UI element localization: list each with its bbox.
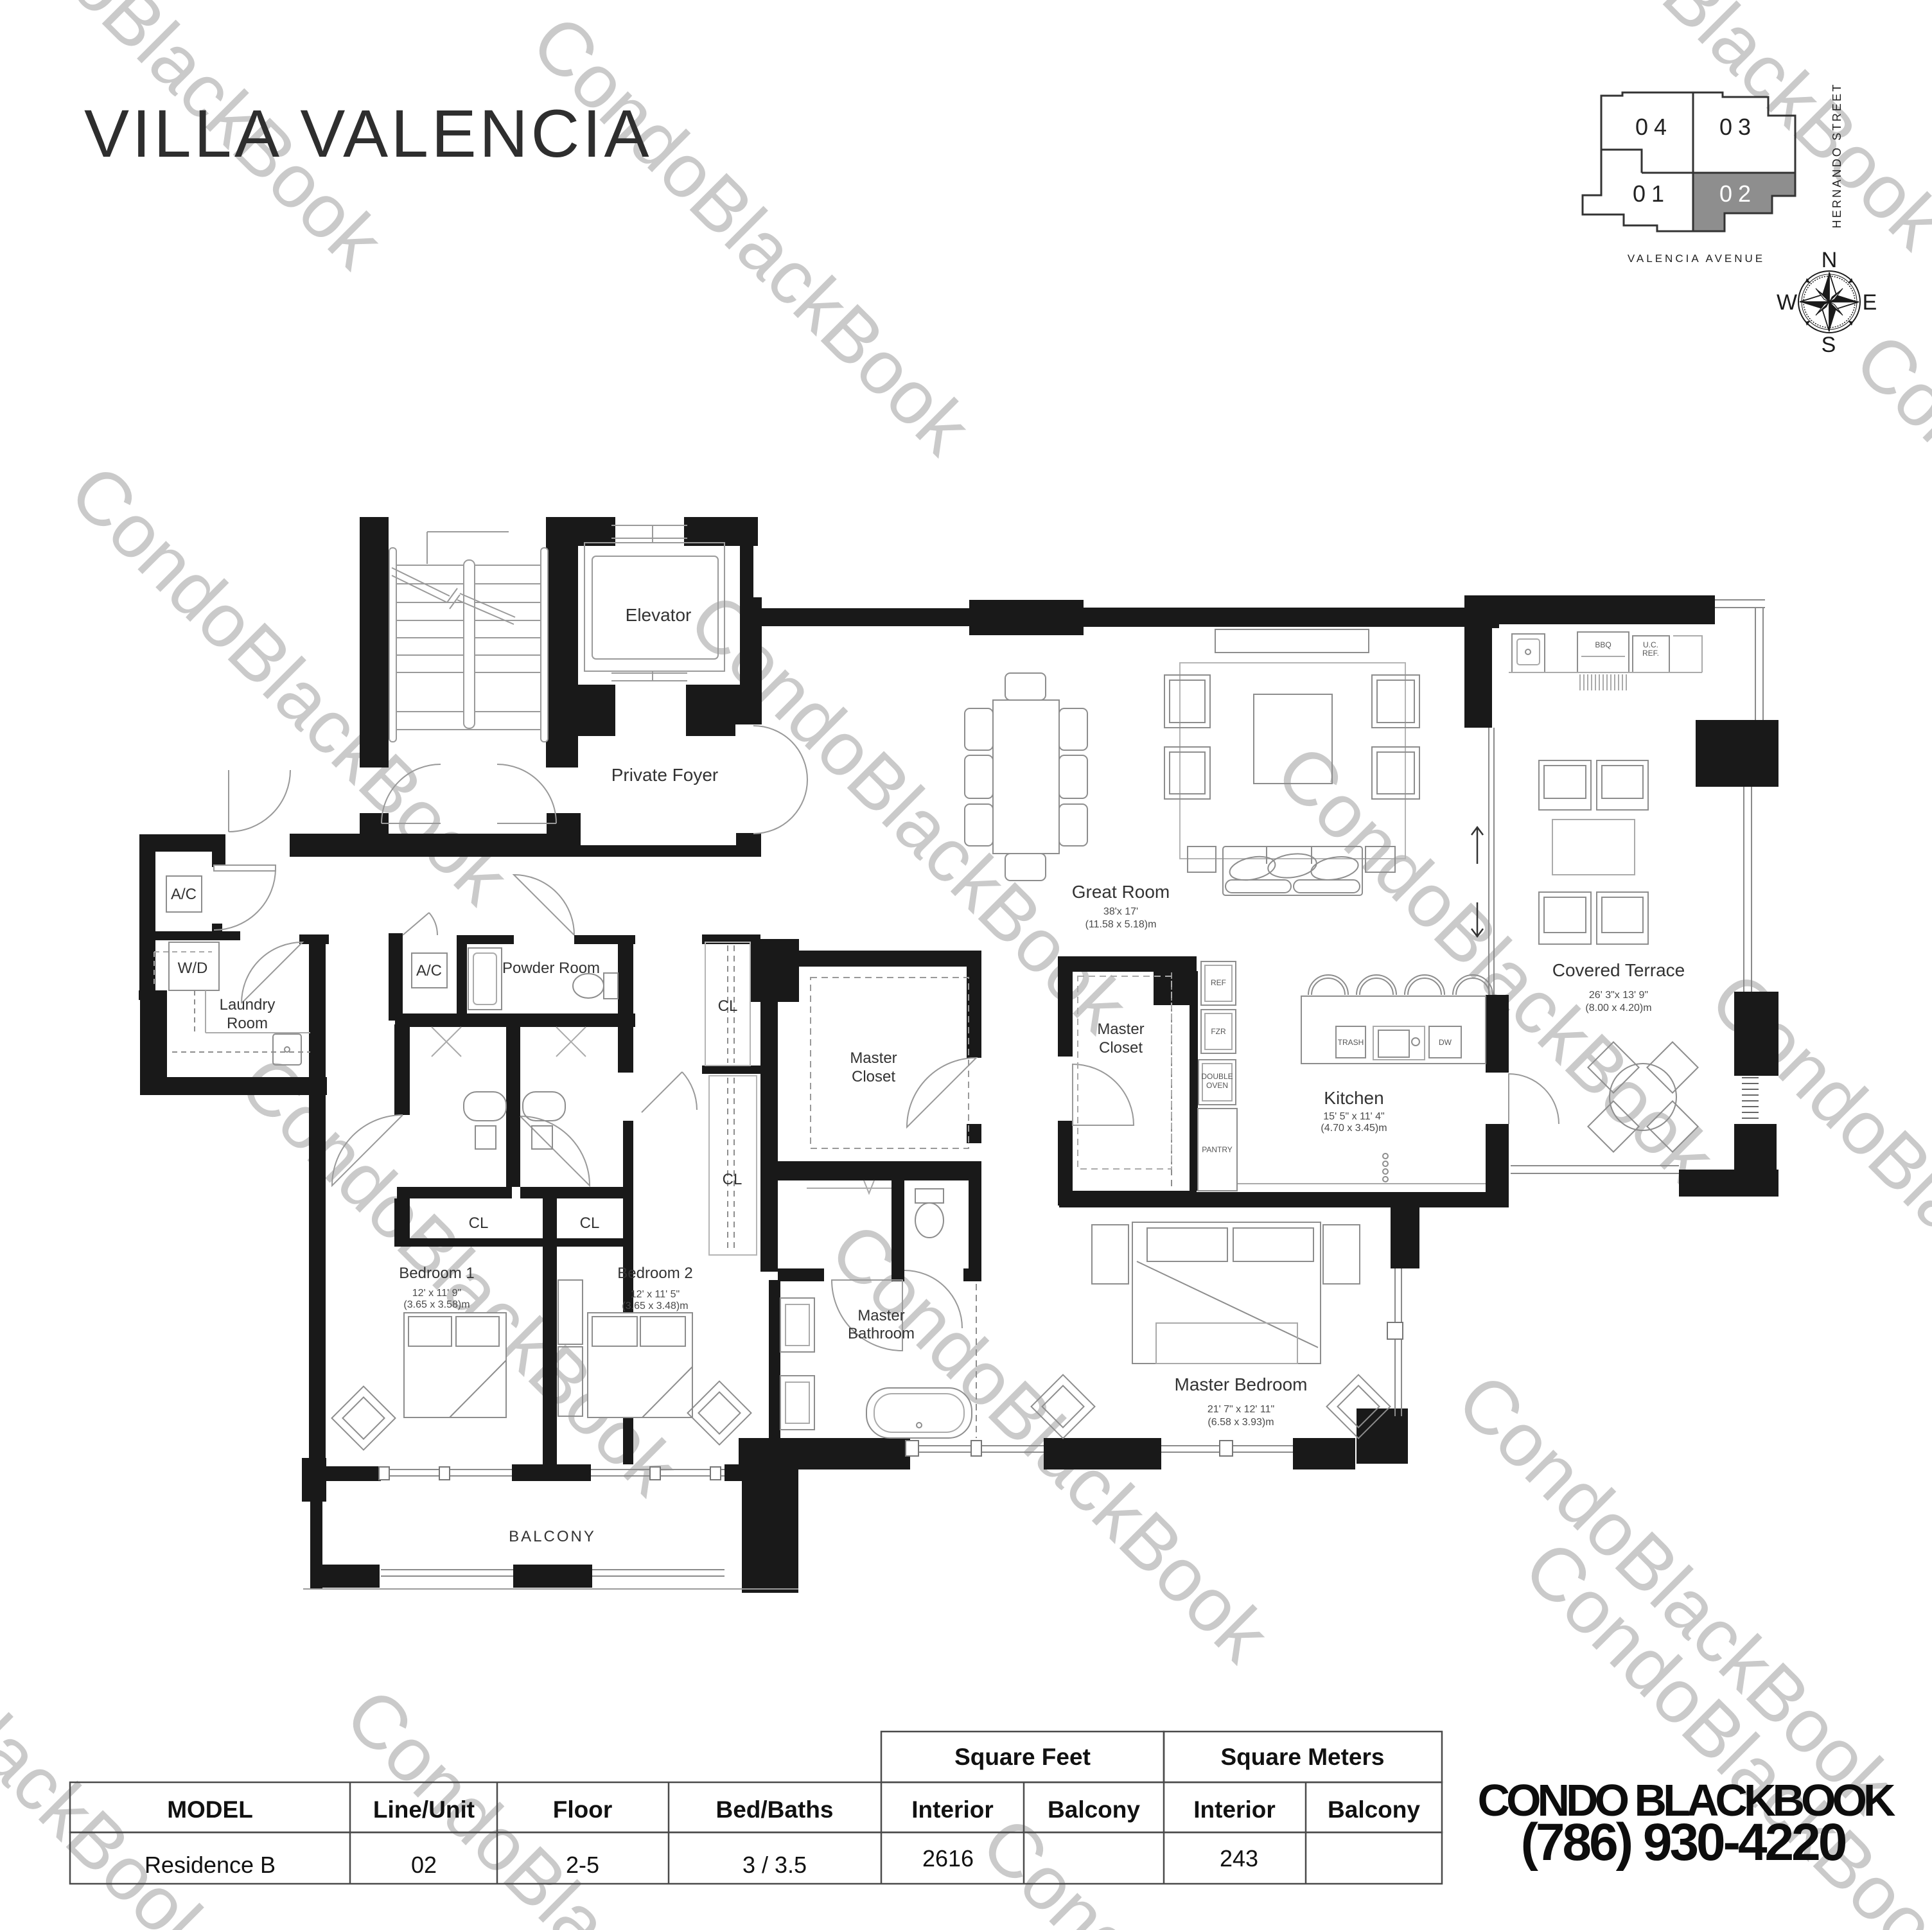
- svg-text:U.C.: U.C.: [1643, 640, 1658, 649]
- svg-text:21' 7" x 12' 11": 21' 7" x 12' 11": [1207, 1404, 1274, 1415]
- svg-text:Interior: Interior: [911, 1796, 993, 1823]
- svg-text:W/D: W/D: [178, 960, 208, 977]
- svg-text:CL: CL: [718, 997, 738, 1015]
- svg-text:A/C: A/C: [416, 962, 442, 979]
- svg-text:MODEL: MODEL: [167, 1796, 253, 1823]
- svg-text:Bed/Baths: Bed/Baths: [716, 1796, 834, 1823]
- svg-text:N: N: [1822, 248, 1838, 272]
- svg-text:02: 02: [411, 1852, 437, 1878]
- svg-text:26' 3"x 13' 9": 26' 3"x 13' 9": [1589, 990, 1648, 1001]
- svg-text:W: W: [1777, 290, 1797, 315]
- svg-text:S: S: [1822, 333, 1836, 357]
- svg-text:Private Foyer: Private Foyer: [611, 765, 719, 785]
- svg-text:HERNANDO STREET: HERNANDO STREET: [1831, 82, 1843, 228]
- svg-text:(3.65 x 3.58)m: (3.65 x 3.58)m: [403, 1299, 470, 1310]
- svg-text:01: 01: [1633, 180, 1670, 207]
- svg-text:CL: CL: [580, 1215, 600, 1232]
- svg-text:Master: Master: [857, 1307, 904, 1324]
- svg-text:2616: 2616: [922, 1845, 974, 1872]
- svg-text:Balcony: Balcony: [1328, 1796, 1420, 1823]
- svg-text:38'x 17': 38'x 17': [1103, 906, 1138, 917]
- svg-text:Residence B: Residence B: [145, 1852, 276, 1878]
- svg-text:Floor: Floor: [553, 1796, 612, 1823]
- svg-text:CL: CL: [469, 1215, 489, 1232]
- svg-text:2-5: 2-5: [566, 1852, 599, 1878]
- svg-text:Closet: Closet: [1099, 1039, 1143, 1057]
- svg-text:Balcony: Balcony: [1048, 1796, 1140, 1823]
- svg-text:(3.65 x 3.48)m: (3.65 x 3.48)m: [622, 1301, 688, 1312]
- svg-text:Square Feet: Square Feet: [954, 1744, 1091, 1770]
- svg-text:Covered Terrace: Covered Terrace: [1552, 960, 1685, 980]
- svg-text:Bedroom 1: Bedroom 1: [399, 1265, 474, 1282]
- svg-text:Elevator: Elevator: [626, 605, 692, 625]
- svg-text:Laundry: Laundry: [220, 996, 276, 1013]
- svg-text:(8.00 x 4.20)m: (8.00 x 4.20)m: [1585, 1003, 1651, 1013]
- svg-text:VILLA VALENCIA: VILLA VALENCIA: [84, 96, 652, 171]
- svg-text:04: 04: [1635, 114, 1673, 140]
- svg-text:REF.: REF.: [1642, 649, 1659, 658]
- svg-text:A/C: A/C: [171, 886, 197, 903]
- svg-text:03: 03: [1719, 114, 1757, 140]
- svg-text:Interior: Interior: [1193, 1796, 1275, 1823]
- svg-text:OVEN: OVEN: [1206, 1081, 1228, 1090]
- svg-text:(6.58 x 3.93)m: (6.58 x 3.93)m: [1207, 1417, 1274, 1428]
- svg-text:BALCONY: BALCONY: [509, 1528, 596, 1545]
- svg-text:VALENCIA AVENUE: VALENCIA AVENUE: [1628, 252, 1765, 265]
- svg-text:(11.58 x 5.18)m: (11.58 x 5.18)m: [1085, 919, 1157, 930]
- svg-text:243: 243: [1220, 1845, 1258, 1872]
- svg-text:Kitchen: Kitchen: [1324, 1088, 1383, 1108]
- svg-text:CL: CL: [723, 1171, 742, 1188]
- svg-text:FZR: FZR: [1211, 1027, 1226, 1036]
- svg-text:15' 5" x 11' 4": 15' 5" x 11' 4": [1323, 1111, 1384, 1122]
- svg-text:DOUBLE: DOUBLE: [1201, 1072, 1233, 1081]
- svg-text:02: 02: [1719, 180, 1757, 207]
- svg-text:REF: REF: [1211, 978, 1226, 987]
- svg-text:3 / 3.5: 3 / 3.5: [742, 1852, 807, 1878]
- svg-text:12' x 11' 9": 12' x 11' 9": [412, 1288, 461, 1299]
- svg-text:TRASH: TRASH: [1338, 1038, 1364, 1047]
- svg-text:(786) 930-4220: (786) 930-4220: [1521, 1813, 1846, 1872]
- svg-text:BBQ: BBQ: [1595, 640, 1611, 649]
- svg-text:Line/Unit: Line/Unit: [373, 1796, 475, 1823]
- svg-text:E: E: [1863, 290, 1877, 315]
- svg-text:(4.70 x 3.45)m: (4.70 x 3.45)m: [1321, 1123, 1387, 1134]
- svg-text:Master: Master: [850, 1049, 897, 1067]
- svg-text:DW: DW: [1439, 1038, 1452, 1047]
- svg-text:Square Meters: Square Meters: [1221, 1744, 1385, 1770]
- svg-text:Bathroom: Bathroom: [848, 1325, 915, 1342]
- svg-text:Powder Room: Powder Room: [502, 960, 600, 977]
- svg-text:PANTRY: PANTRY: [1202, 1145, 1233, 1154]
- svg-text:Bedroom 2: Bedroom 2: [617, 1265, 692, 1282]
- svg-text:12' x 11' 5": 12' x 11' 5": [631, 1289, 680, 1300]
- svg-text:Master Bedroom: Master Bedroom: [1175, 1374, 1308, 1394]
- svg-text:Closet: Closet: [852, 1068, 895, 1085]
- svg-text:Great Room: Great Room: [1072, 882, 1170, 902]
- svg-text:Master: Master: [1097, 1021, 1144, 1038]
- svg-text:Room: Room: [227, 1015, 268, 1032]
